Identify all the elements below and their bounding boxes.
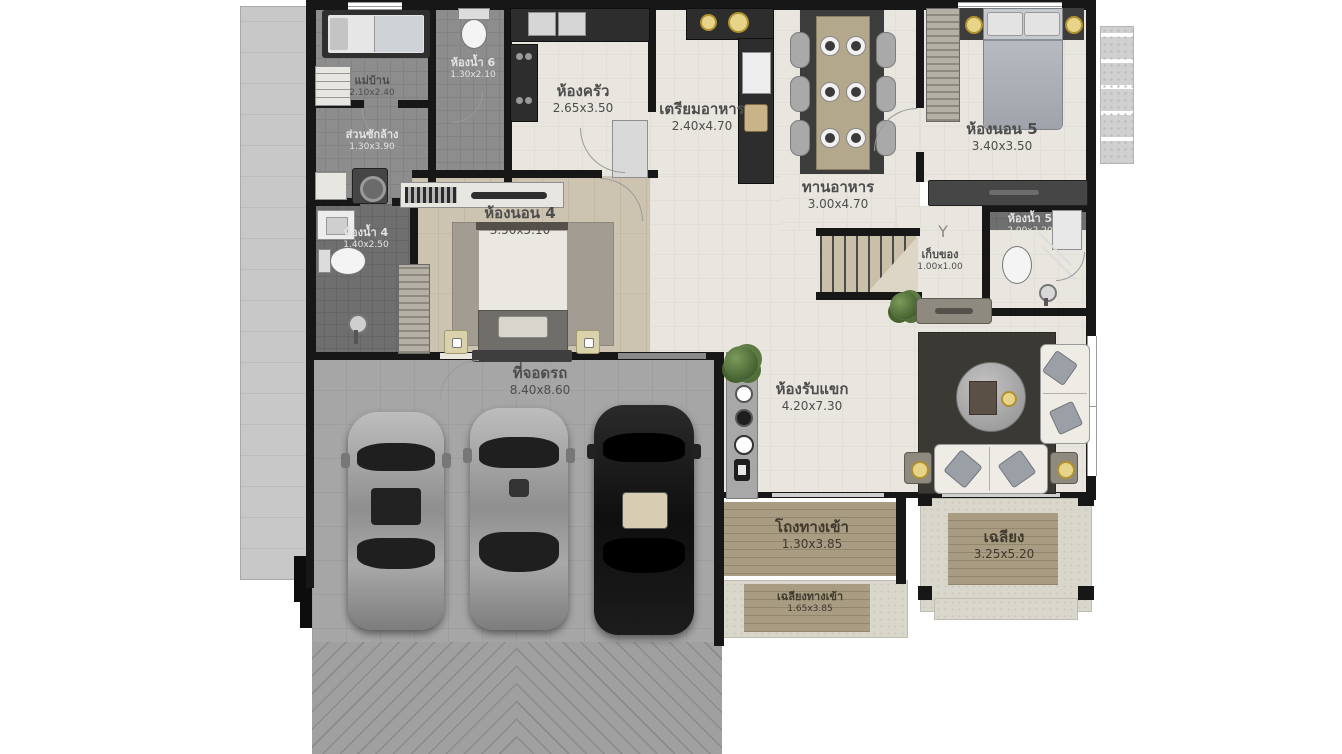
coffee-table-round	[956, 362, 1026, 432]
sliding-door-living	[772, 493, 884, 497]
maid-cabinet	[315, 66, 351, 106]
wall-hall-left-stub	[714, 498, 724, 584]
wardrobe-bedroom5	[926, 8, 960, 122]
kitchen-sink	[528, 12, 556, 36]
side-yard-strip	[240, 6, 312, 580]
nightstand-lamp	[960, 8, 984, 40]
stove-counter	[510, 44, 538, 122]
wall-carport-left	[306, 352, 314, 588]
console-table	[916, 298, 992, 324]
terrace-deck	[948, 513, 1058, 585]
terrace-post-tr	[1078, 492, 1094, 506]
toilet-bath4	[318, 246, 366, 274]
wall-stairs-top	[816, 228, 920, 236]
bed-bedroom4	[476, 222, 568, 362]
wall-hall-right-stub	[896, 498, 906, 584]
terrace-post-br	[1078, 586, 1094, 600]
toilet-bath6	[456, 8, 490, 50]
decor-bowl	[700, 14, 717, 31]
kitchen-sink	[558, 12, 586, 36]
plant-stairs	[890, 292, 918, 320]
car-black	[594, 405, 694, 635]
terrace-step	[934, 598, 1078, 620]
window-top-maid	[348, 2, 402, 10]
basin-bath5	[1038, 284, 1054, 306]
sink-bath4	[317, 210, 355, 240]
wall-dining-bedroom5-a	[916, 0, 924, 108]
refrigerator	[742, 52, 771, 94]
dresser-bedroom5	[928, 180, 1088, 206]
terrace-post-bl	[918, 586, 932, 600]
toilet-bath5	[1002, 246, 1032, 284]
washing-machine	[352, 168, 388, 204]
side-table-lamp	[1050, 452, 1078, 484]
floor-lamp-pad	[576, 330, 600, 354]
entry-terrace-deck	[744, 584, 870, 632]
car-silver-2	[470, 408, 568, 630]
sofa-right	[1040, 344, 1090, 444]
nightstand-lamp	[1060, 8, 1084, 40]
carport-shelf-band	[618, 353, 706, 359]
shelf-bedroom4	[400, 182, 564, 208]
decor-plant-gold	[728, 12, 749, 33]
plant-entry	[724, 346, 758, 380]
car-silver-1	[348, 412, 444, 630]
entry-hall-deck	[724, 502, 898, 576]
side-table-lamp	[904, 452, 932, 484]
maid-bed	[322, 10, 430, 58]
bed-bedroom5	[983, 8, 1063, 130]
wall-bedroom4-top-a	[412, 170, 602, 178]
shower-bath4	[342, 312, 370, 346]
hallway-floor	[650, 176, 780, 236]
driveway-left	[312, 642, 517, 754]
floor-lamp-pad	[444, 330, 468, 354]
driveway-right	[517, 642, 722, 754]
terrace-post-tl	[918, 492, 932, 506]
wardrobe-bath4-side	[398, 264, 430, 354]
prep-appliance	[744, 104, 768, 132]
wall-dining-bedroom5-b	[916, 152, 924, 182]
sofa-bottom	[934, 444, 1048, 494]
stone-path	[1100, 26, 1134, 164]
sink-bath5	[1052, 210, 1082, 250]
laundry-counter	[315, 172, 347, 200]
floor-plan: Y	[0, 0, 1342, 754]
door-symbol-storage: Y	[928, 222, 958, 244]
